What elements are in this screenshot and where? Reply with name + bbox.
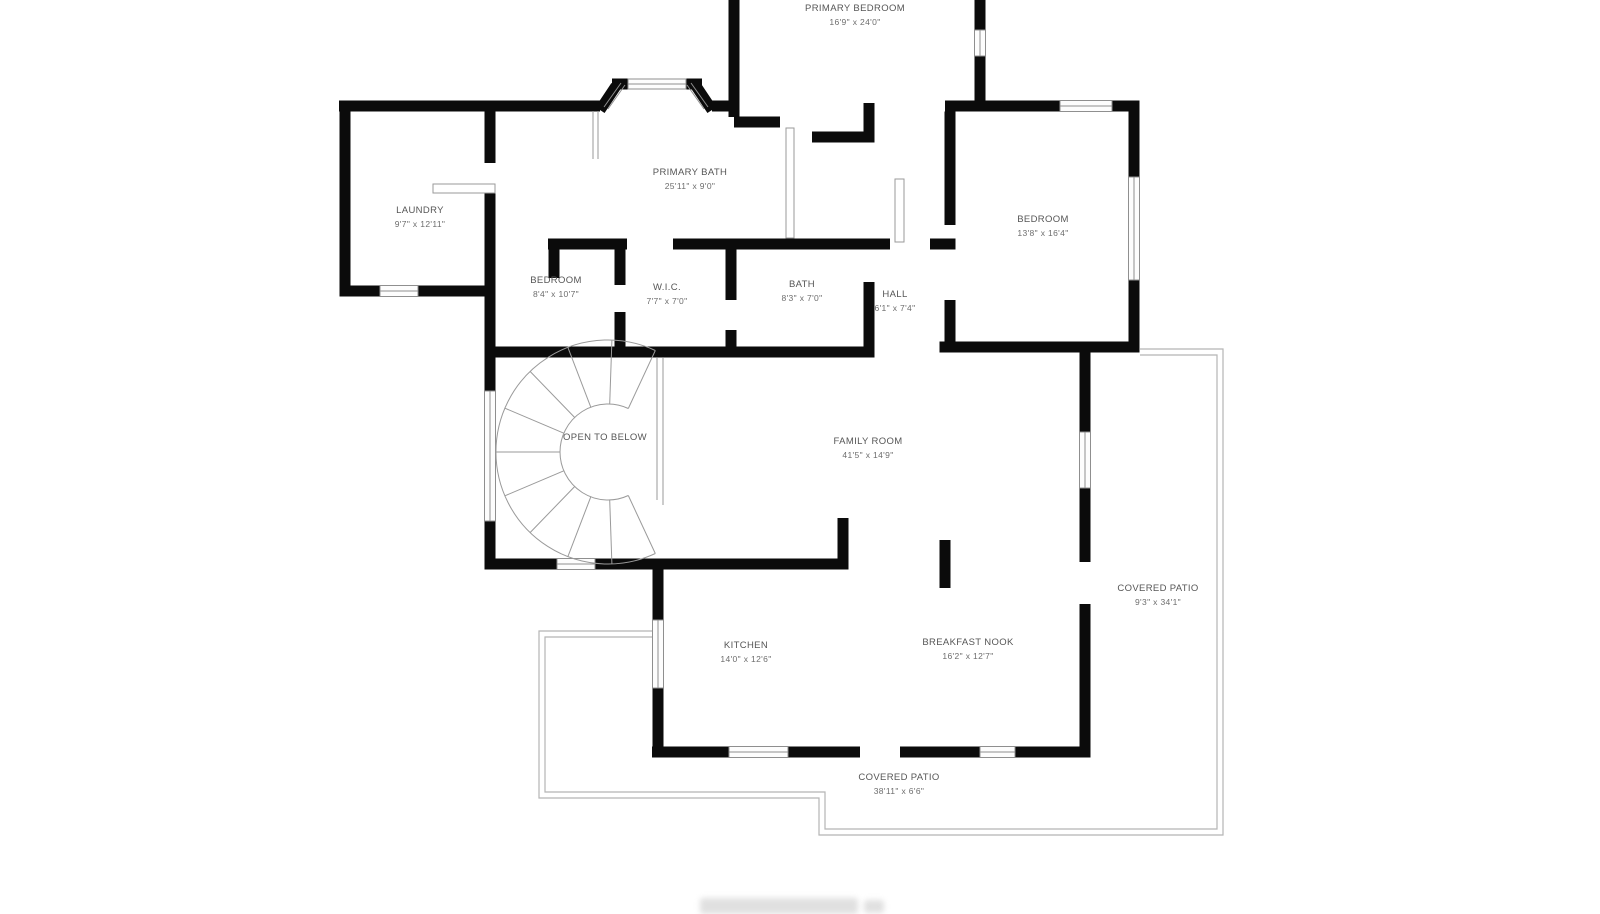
- room-label-primary-bath: PRIMARY BATH 25'11" x 9'0": [653, 166, 727, 192]
- room-dims: 16'2" x 12'7": [922, 650, 1013, 662]
- room-name: FAMILY ROOM: [834, 435, 903, 449]
- room-dims: 14'0" x 12'6": [720, 653, 771, 665]
- room-dims: 16'9" x 24'0": [805, 16, 905, 28]
- room-dims: 7'7" x 7'0": [646, 295, 687, 307]
- room-name: BEDROOM: [530, 274, 582, 288]
- room-label-bedroom-right: BEDROOM 13'8" x 16'4": [1017, 213, 1069, 239]
- room-label-bath: BATH 8'3" x 7'0": [781, 278, 822, 304]
- floorplan-drawing: [0, 0, 1600, 914]
- room-name: COVERED PATIO: [858, 771, 939, 785]
- room-label-kitchen: KITCHEN 14'0" x 12'6": [720, 639, 771, 665]
- room-name: W.I.C.: [646, 281, 687, 295]
- room-name: OPEN TO BELOW: [563, 431, 647, 445]
- floorplan-canvas: PRIMARY BEDROOM 16'9" x 24'0" LAUNDRY 9'…: [0, 0, 1600, 914]
- room-label-bedroom-left: BEDROOM 8'4" x 10'7": [530, 274, 582, 300]
- room-label-primary-bedroom: PRIMARY BEDROOM 16'9" x 24'0": [805, 2, 905, 28]
- room-dims: 41'5" x 14'9": [834, 449, 903, 461]
- room-dims: 9'7" x 12'11": [395, 218, 446, 230]
- room-name: COVERED PATIO: [1117, 582, 1198, 596]
- room-label-laundry: LAUNDRY 9'7" x 12'11": [395, 204, 446, 230]
- room-name: BEDROOM: [1017, 213, 1069, 227]
- room-dims: 25'11" x 9'0": [653, 180, 727, 192]
- room-dims: 13'8" x 16'4": [1017, 227, 1069, 239]
- room-name: PRIMARY BEDROOM: [805, 2, 905, 16]
- room-dims: 6'1" x 7'4": [874, 302, 915, 314]
- room-name: KITCHEN: [720, 639, 771, 653]
- room-label-family-room: FAMILY ROOM 41'5" x 14'9": [834, 435, 903, 461]
- room-label-wic: W.I.C. 7'7" x 7'0": [646, 281, 687, 307]
- cutoff-caption-artifact: [864, 900, 884, 913]
- cutoff-caption-artifact: [700, 898, 858, 914]
- staircase: [496, 340, 663, 564]
- room-dims: 8'3" x 7'0": [781, 292, 822, 304]
- room-name: BREAKFAST NOOK: [922, 636, 1013, 650]
- room-dims: 8'4" x 10'7": [530, 288, 582, 300]
- room-name: LAUNDRY: [395, 204, 446, 218]
- room-label-open-to-below: OPEN TO BELOW: [563, 431, 647, 445]
- room-label-covered-patio-bottom: COVERED PATIO 38'11" x 6'6": [858, 771, 939, 797]
- room-label-breakfast-nook: BREAKFAST NOOK 16'2" x 12'7": [922, 636, 1013, 662]
- room-name: BATH: [781, 278, 822, 292]
- room-label-covered-patio-right: COVERED PATIO 9'3" x 34'1": [1117, 582, 1198, 608]
- room-dims: 38'11" x 6'6": [858, 785, 939, 797]
- room-label-hall: HALL 6'1" x 7'4": [874, 288, 915, 314]
- room-name: PRIMARY BATH: [653, 166, 727, 180]
- room-name: HALL: [874, 288, 915, 302]
- room-dims: 9'3" x 34'1": [1117, 596, 1198, 608]
